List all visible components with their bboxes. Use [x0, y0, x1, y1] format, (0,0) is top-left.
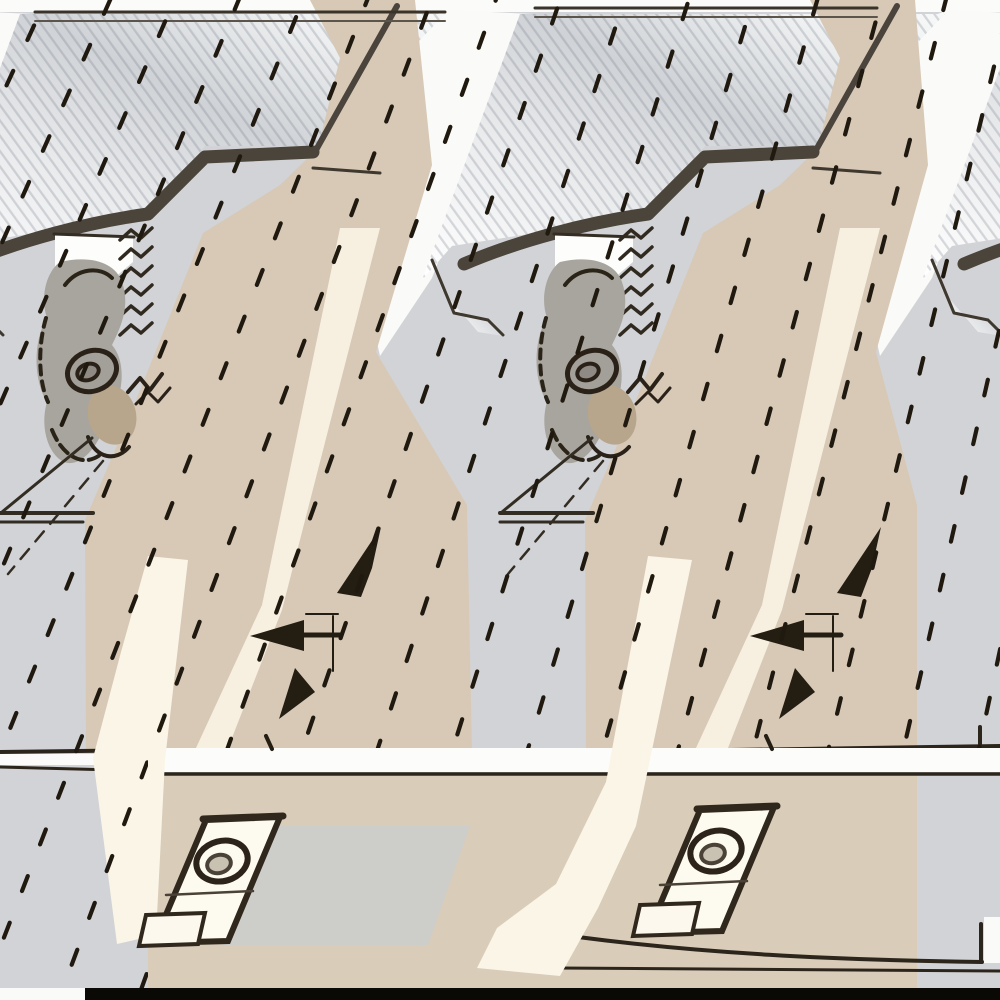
white-gap-band: [148, 748, 1000, 772]
insert-icon-base-flap: [139, 913, 205, 946]
bottom-white-corner: [0, 988, 85, 1000]
insert-icon-top-edge: [697, 806, 777, 809]
insert-icon-base-flap: [633, 903, 699, 936]
strip-corner-notch: [984, 917, 1000, 963]
machining-illustration-page: [0, 0, 1000, 1000]
technical-illustration: [0, 0, 1000, 1000]
scene-root: [0, 0, 1000, 1000]
insert-icon-top-edge: [203, 816, 283, 819]
bottom-black-band: [85, 988, 1000, 1000]
